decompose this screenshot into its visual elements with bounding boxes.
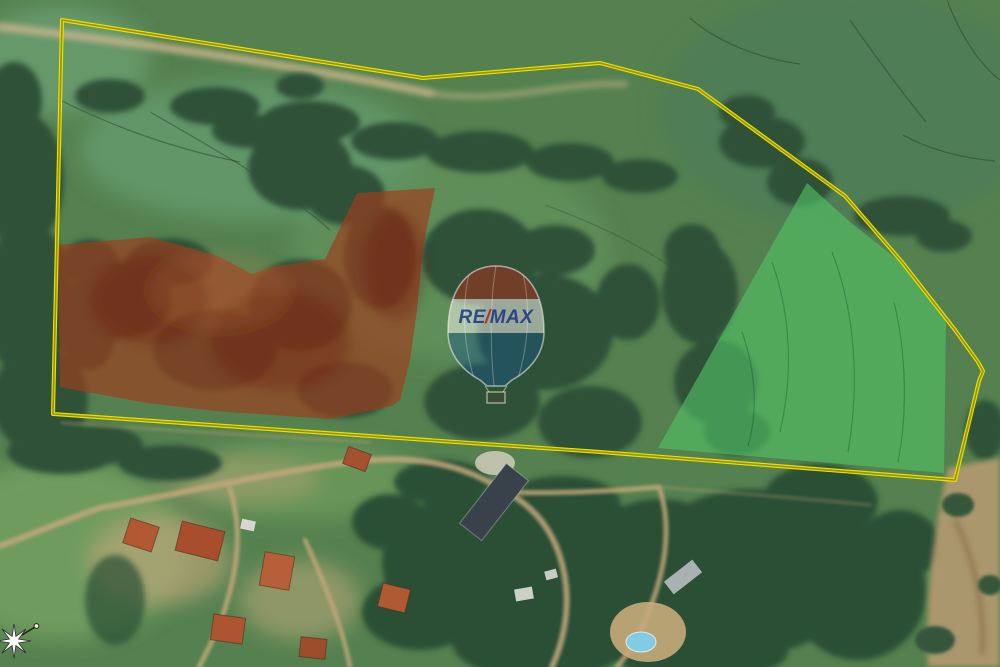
- house-roof: [259, 552, 294, 591]
- satellite-map: RE/MAX: [0, 0, 1000, 667]
- swimming-pool: [626, 632, 656, 652]
- aerial-listing-image: RE/MAX: [0, 0, 1000, 667]
- house-roof: [210, 614, 245, 644]
- house-roof: [299, 637, 327, 660]
- pool-yard: [610, 602, 686, 662]
- remax-wordmark: RE/MAX: [459, 307, 535, 328]
- compass-needle-tip: [34, 624, 39, 629]
